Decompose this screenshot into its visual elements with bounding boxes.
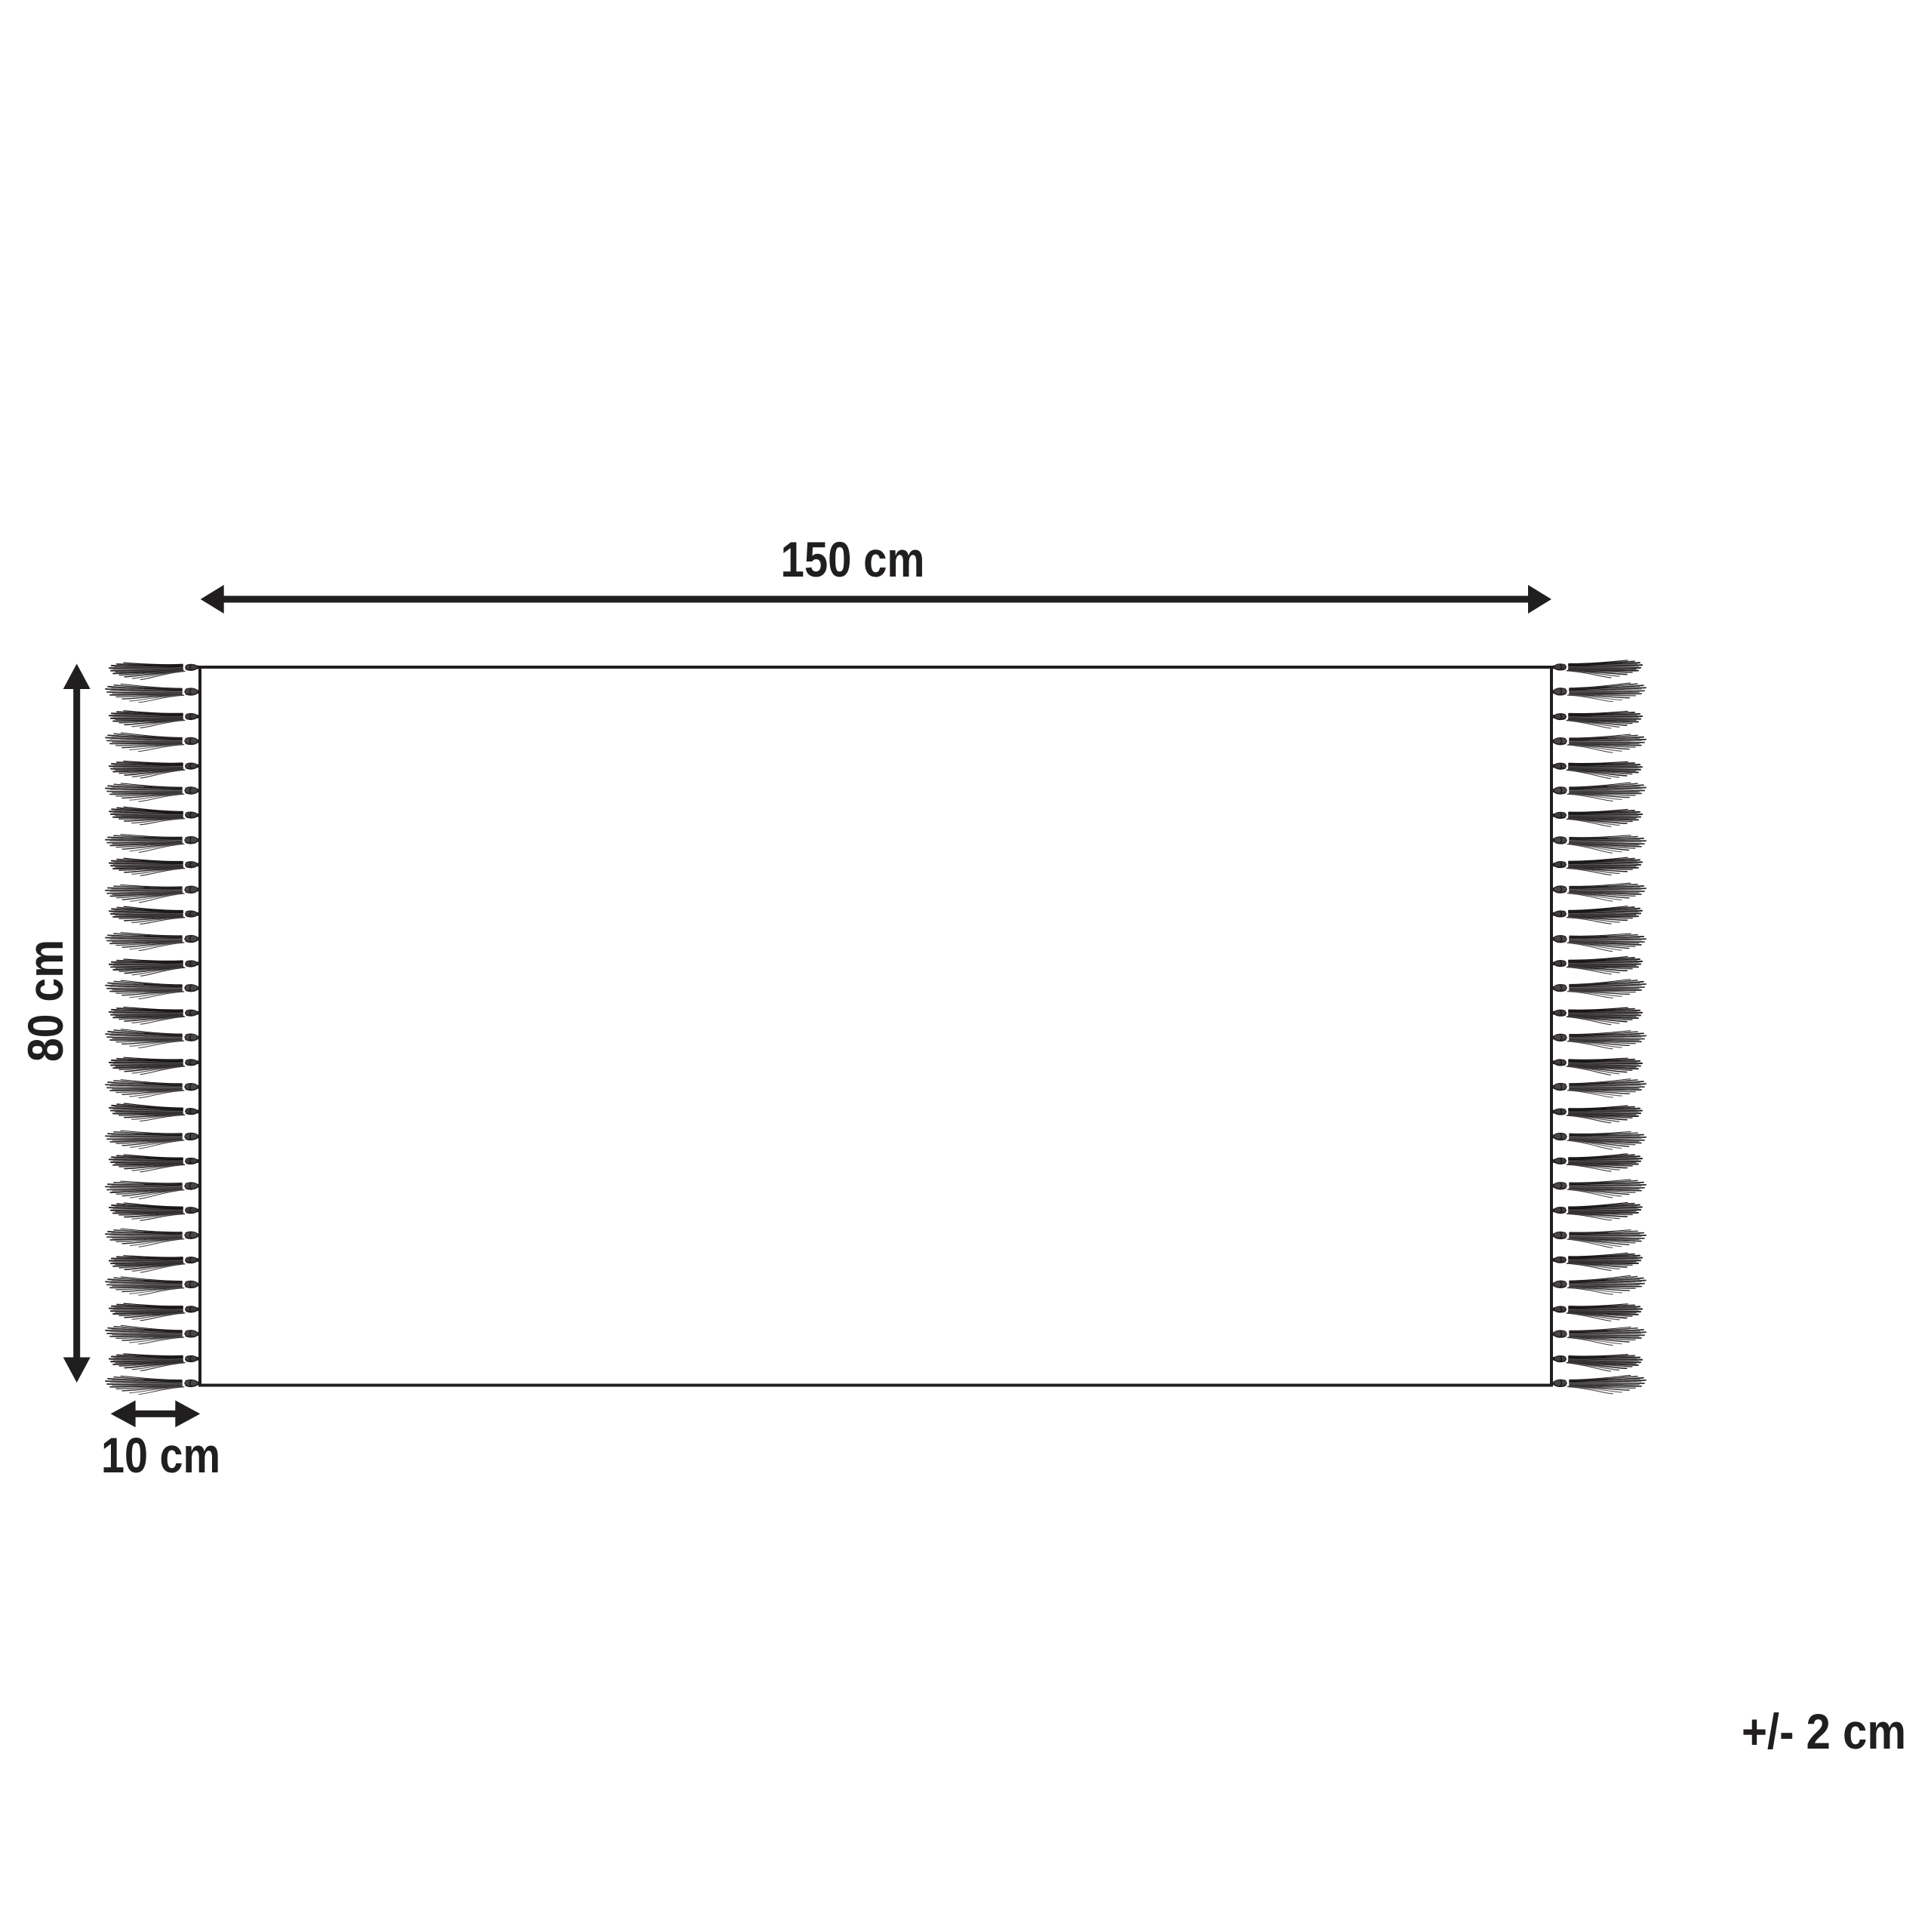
svg-text:80 cm: 80 cm: [17, 940, 73, 1062]
svg-text:10 cm: 10 cm: [101, 1427, 220, 1483]
svg-text:+/- 2 cm: +/- 2 cm: [1742, 1703, 1906, 1759]
svg-text:150 cm: 150 cm: [781, 531, 925, 587]
